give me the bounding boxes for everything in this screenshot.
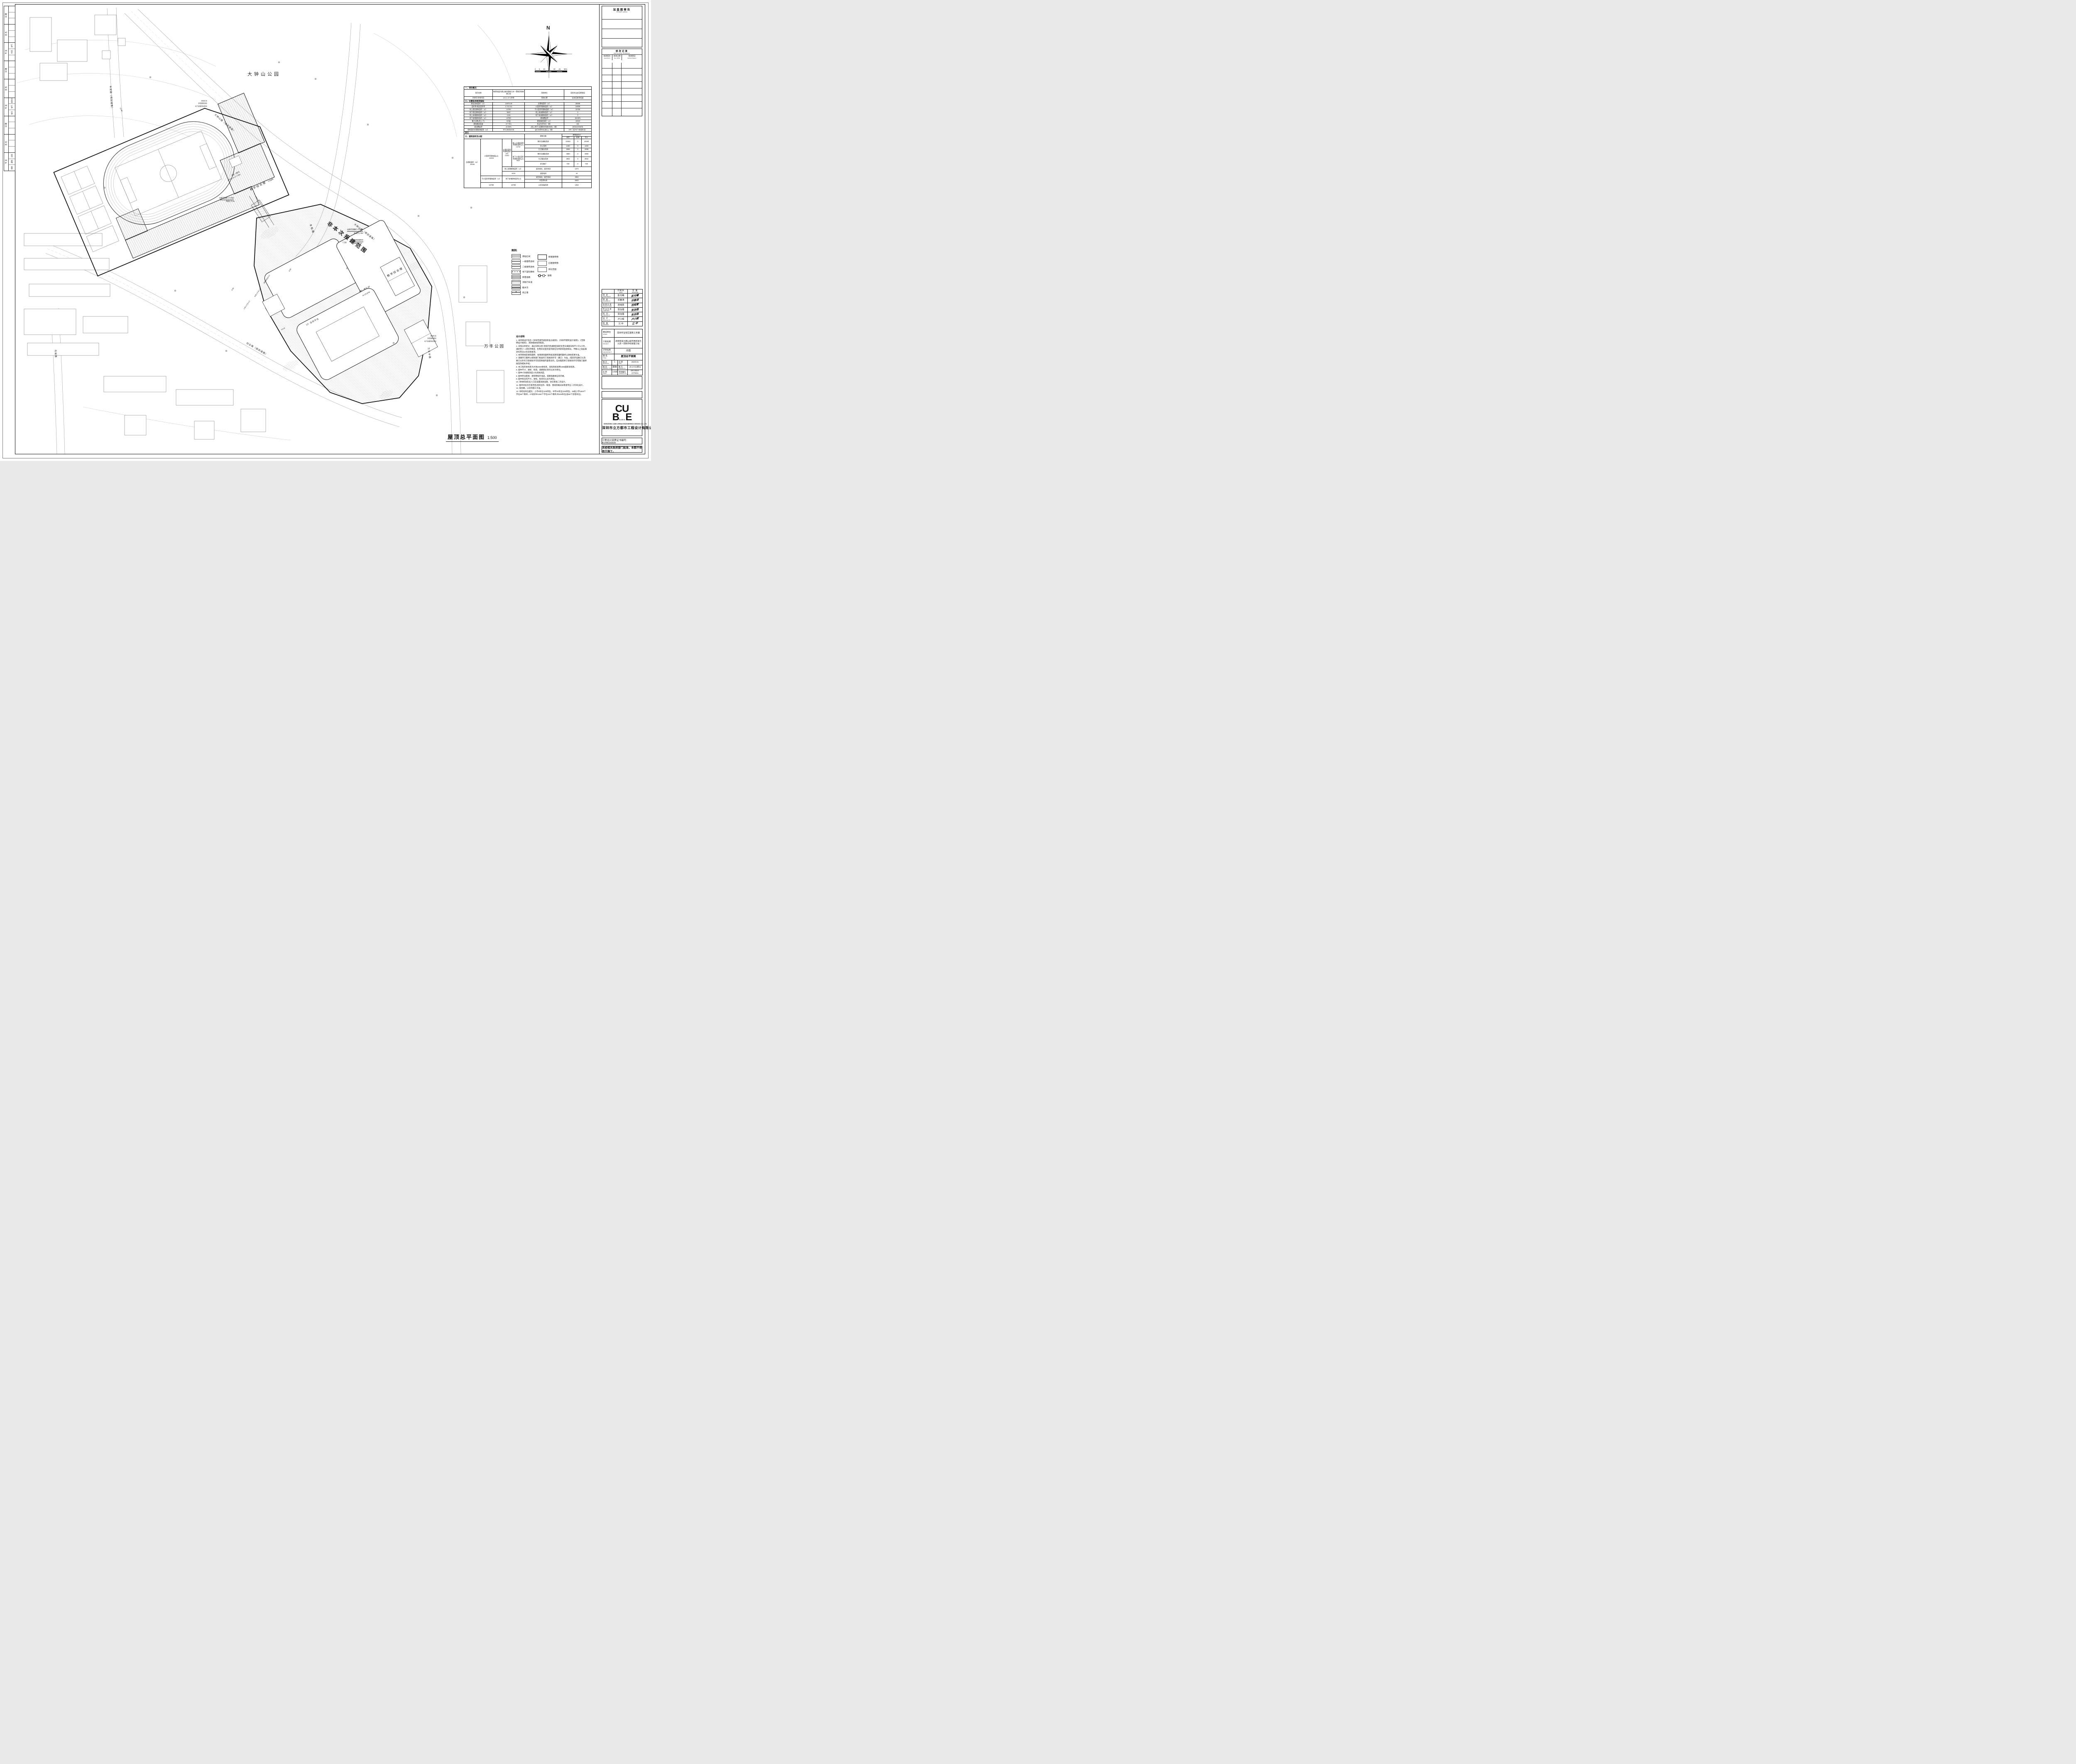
legend-item: 二级建筑退线: [512, 264, 534, 269]
signature-row: 审 定APPROVED BY 彭光曦 彭光曦: [602, 294, 643, 298]
signature-table: 印刷体PRINT 签 署SIGNATURE 审 定APPROVED BY 彭光曦…: [602, 289, 643, 326]
firelane-note-1: 消防车道穿越建筑处: [350, 239, 363, 242]
design-note-item: 3. 本项目规定建筑面积、核增建筑面积和核减建筑面积最终以测绘结果为准。: [516, 354, 587, 357]
legend-item: 新建道路: [512, 274, 534, 280]
legend-item: 一级建筑退线: [512, 259, 534, 265]
legend-item: 用地红线: [512, 254, 534, 259]
legend-symbol-icon: [512, 280, 521, 284]
park-label-right: 万丰公园: [484, 343, 505, 349]
floor-area-allocation-table: 三、建筑面积及分配 建筑功能 建筑面积㎡ 规定 核减 合计 总建筑面积（㎡）35…: [464, 134, 592, 188]
signoff-strip-section: 日 期: [4, 6, 15, 24]
corridor-note-lower-1: 连廊范围属于小学部: [347, 228, 363, 232]
signoff-strip-label: 专 业: [4, 43, 9, 61]
revision-record-box: 修改记录 REIVISON REMARK 修改版次Amendment 修改日期R…: [602, 49, 642, 116]
corridor-note-upper-1: 连廊范围属于小学部: [219, 197, 234, 200]
scale-bar-labels: 051015202530m: [535, 68, 567, 70]
handwritten-signature: 范纯青: [628, 303, 643, 307]
signature-row: 专业负责CHIEF ENGI. 张治强 张治强: [602, 307, 643, 312]
signoff-strip-label: 签 名: [4, 24, 9, 42]
design-note-item: 7. 图中H为规划高度,h为消防高度。: [516, 372, 587, 375]
design-note-item: 12. 规划路，以实际施工为准。: [516, 387, 587, 390]
indicator-row: 绿地面积/折算绿地面积（㎡） 974.29/618.66 自行车停车位(地上)（…: [464, 129, 592, 132]
handwritten-signature: 张治强: [628, 307, 643, 312]
cube-logo: CU BSUEOE: [602, 405, 642, 421]
guard-room-label: 门卫室: [342, 242, 347, 244]
titleblock-divider: [599, 4, 600, 454]
legend: 图例: 用地红线 一级建筑退线 二级建筑退线: [512, 248, 556, 295]
legend-symbol-icon: [512, 275, 521, 279]
legend-symbol-icon: [512, 285, 521, 289]
signature-row: 项目负责PROJECT CHIEF 范纯青 范纯青: [602, 303, 643, 307]
indicator-row: 建设用地面积（㎡） 14575.48 总建筑面积（㎡） 35588: [464, 103, 592, 105]
signature-row: 设 计DESIGNED BY 卢小辉 卢小辉: [602, 317, 643, 321]
indicator-row: 绿化覆盖率 10.93% (地上/地下/无障碍/充电桩/校车)（辆） (0/15…: [464, 126, 592, 129]
project-overview-table: 一、项目概况 项目名称 新桥街道大朗山城市更新九年一贯制学校新建工程 用地单位 …: [464, 86, 592, 135]
legend-symbol-icon: [538, 261, 547, 266]
legend-item: 已建建筑物: [538, 260, 557, 266]
signature-row: 制 图DRAWN BY 江 中 江 中: [602, 321, 643, 326]
signoff-strip-section: 签 名: [4, 24, 15, 43]
company-name-en: SHENZHEN CUBE-URBAN ENGINEERING DESIGN C…: [604, 423, 640, 425]
park-label-top: 大钟山公园: [247, 71, 281, 77]
handwritten-signature: 邓春涛: [628, 298, 643, 303]
section-header: 一、项目概况: [464, 87, 592, 90]
legend-left-column: 用地红线 一级建筑退线 二级建筑退线 地下室轮廓线: [512, 254, 534, 295]
legend-title: 图例:: [512, 248, 556, 252]
design-note-item: 5. 本工程的坐标系为大地2000坐标系，高程系统采用1985国家高程系。: [516, 366, 587, 369]
design-note-item: 8. 图中所注距离：建筑物指外墙皮，道路指路缘石的内缘。: [516, 375, 587, 378]
legend-symbol-icon: [512, 270, 521, 274]
stamp-area-box: 加盖图章处 STAMP AREA: [602, 6, 642, 47]
company-box: CU BSUEOE SHENZHEN CUBE-URBAN ENGINEERIN…: [602, 399, 642, 436]
signoff-strip-section: 专 业 燃气 空调: [4, 43, 15, 61]
signoff-strip-section: 日 期: [4, 116, 15, 135]
signoff-strip-section: 日 期: [4, 61, 15, 79]
indicator-row: 地上规定建筑面积（㎡） 13750 不计容积率建筑面积（㎡） 10780: [464, 108, 592, 111]
legend-item: 地下室轮廓线: [512, 269, 534, 275]
indicator-row: 地上核增建筑面积（㎡） 1416 地下核减建筑面积（㎡） 0: [464, 114, 592, 117]
design-note-item: 13. 非机动车位配比：小学8车位/100师生，中学20车位/100师生，36班…: [516, 390, 587, 396]
signoff-strip-label: 日 期: [4, 61, 9, 79]
design-note-item: 9. 图中标注的尺寸，坐标，标高均以米为单位。: [516, 378, 587, 381]
indicator-row: 最大层数(地上/下) 6/2层 建筑基底面积（㎡） 10010: [464, 120, 592, 123]
handwritten-signature: 张治强: [628, 312, 643, 317]
construction-notice-box: 未经相关政府部门批准，本图不得用于施工。: [602, 446, 642, 453]
indicator-row: 容积率/规定容积率 1.71/1.61 计容积率建筑面积（㎡） 24808: [464, 105, 592, 108]
handwritten-signature: 江 中: [628, 321, 643, 326]
edition-row: 版 次EDITION No. 1 日 期DATE 2026.01: [602, 360, 643, 365]
legend-symbol-icon: [512, 254, 521, 258]
signoff-strip-label: 签 名: [4, 79, 9, 97]
corridor-note-upper-2: 净高大于6M: [226, 200, 235, 203]
edition-table: 版 次EDITION No. 1 日 期DATE 2026.01 图 别DRAW…: [602, 360, 643, 375]
north-arrow-icon: [524, 27, 574, 81]
scale-bar: 051015202530m: [535, 68, 567, 72]
signoff-strip-label: 专 业: [4, 153, 9, 171]
design-notes-title: 设计说明:: [516, 336, 587, 339]
signature-row: 审 核EXAMINED BY 邓春涛 邓春涛: [602, 298, 643, 303]
certificate-box: 工程设计资质证书编号：A144016509: [602, 438, 642, 444]
revision-col-amendment: 修改版次Amendment: [602, 55, 612, 60]
design-note-item: 6. 图中尺寸、坐标、标高、道路坡长等均以米为单位。: [516, 369, 587, 372]
signoff-strip-section: 专 业 总图 建筑 结构: [4, 153, 15, 171]
empty-stamp-box: [602, 376, 642, 389]
signoff-strip-section: 专 业 给排水 电气 电讯: [4, 98, 15, 116]
legend-symbol-icon: [538, 267, 547, 272]
scale-bar-row2: [535, 71, 567, 72]
signoff-strip-label: 日 期: [4, 6, 9, 24]
signature-row: 校 对CHECKED BY 张治强 张治强: [602, 312, 643, 317]
legend-item: 绿化范围: [538, 266, 557, 272]
legend-symbol-icon: [538, 255, 547, 260]
design-note-item: 1. 本项目设计符合《深圳市城市规划标准与规则》、《深圳市建筑设计规则》、《无障…: [516, 339, 587, 345]
indicator-row: 地下核增建筑面积（㎡） 10780 建筑覆盖率 68.68%: [464, 117, 592, 120]
handwritten-signature: 卢小辉: [628, 317, 643, 321]
boundary-notes-bottom: 用地红线多层建筑退线地下室建筑轮廓线: [424, 335, 436, 343]
legend-item: 围墙: [538, 272, 557, 279]
edition-row: 图 别DRAWING TYPE 建施 图 号DRAWING No. JS-Z-0…: [602, 365, 643, 370]
legend-symbol-icon: [512, 260, 521, 264]
design-note-item: 2. 日照分析结论：通过日照分析,地块内普通教室满足冬至日满窗日照不小于2小时，…: [516, 345, 587, 354]
legend-item: 消防行车道: [512, 280, 534, 285]
signoff-strip-label: 日 期: [4, 116, 9, 134]
design-note-item: 10. 场地机动车出入口应设置减速设施，详见景观二次设计。: [516, 381, 587, 384]
empty-thin-box: [602, 391, 642, 398]
handwritten-signature: 彭光曦: [628, 294, 643, 298]
signoff-strip-label: 签 名: [4, 135, 9, 152]
signoff-strip-section: 签 名: [4, 135, 15, 153]
legend-symbol-icon: [538, 274, 546, 277]
drawing-main-title: 屋顶总平面图 1:500: [446, 433, 499, 442]
corridor-note-lower-2: 净高大于6M: [354, 232, 363, 235]
legend-item: 挡土墙: [512, 290, 534, 296]
signoff-strip-label: 专 业: [4, 98, 9, 116]
company-name-zh: 深圳市立方都市工程设计有限公司: [602, 425, 642, 430]
legend-item: 新建建筑物: [538, 254, 557, 260]
design-note-item: 11. 图中绿化仅示意范围,连同台阶、坡道、围墙等做法详景观专业二次深化设计。: [516, 384, 587, 387]
road-label-shiyan: 石岩路: [54, 350, 58, 358]
legend-symbol-icon: [512, 291, 521, 295]
indicator-row: 建筑最高高度 27.70m 机动车停车位（辆） 151: [464, 123, 592, 126]
signoff-strip-section: 签 名: [4, 79, 15, 98]
firelane-note-2: 净高大于4M: [354, 243, 362, 245]
revision-col-reason: 修改原因Reivison Reason: [622, 55, 642, 60]
design-notes: 设计说明: 1. 本项目设计符合《深圳市城市规划标准与规则》、《深圳市建筑设计规…: [516, 336, 587, 396]
legend-symbol-icon: [512, 265, 521, 269]
drawing-sheet: 日 期 签 名 专 业 燃气: [0, 0, 651, 461]
legend-item: 截水沟: [512, 285, 534, 290]
revision-col-date: 修改日期Rev. DATE: [612, 55, 622, 60]
indicator-row: 地下规定建筑面积（㎡） 9642 地上核减建筑面积（㎡） 0: [464, 111, 592, 114]
discipline-signoff-strip: 日 期 签 名 专 业 燃气: [4, 6, 15, 171]
project-identity-table: 建设单位CLIENT 深圳市宝安区建筑工务署 工程名称PROJECT 新桥街道大…: [602, 329, 643, 360]
boundary-notes-top: 用地红线多层建筑退线地下室建筑轮廓线: [195, 100, 207, 108]
legend-right-column: 新建建筑物 已建建筑物 绿化范围 围墙: [538, 254, 557, 295]
edition-row: 比 例SCALE 1:500 项目编号CONTRACT No. DS.2024-…: [602, 370, 643, 375]
design-note-item: 4. 道路开口最终以规划部门批复的工程规划许可（路口）为准。(但因开设路口以及路…: [516, 357, 587, 365]
